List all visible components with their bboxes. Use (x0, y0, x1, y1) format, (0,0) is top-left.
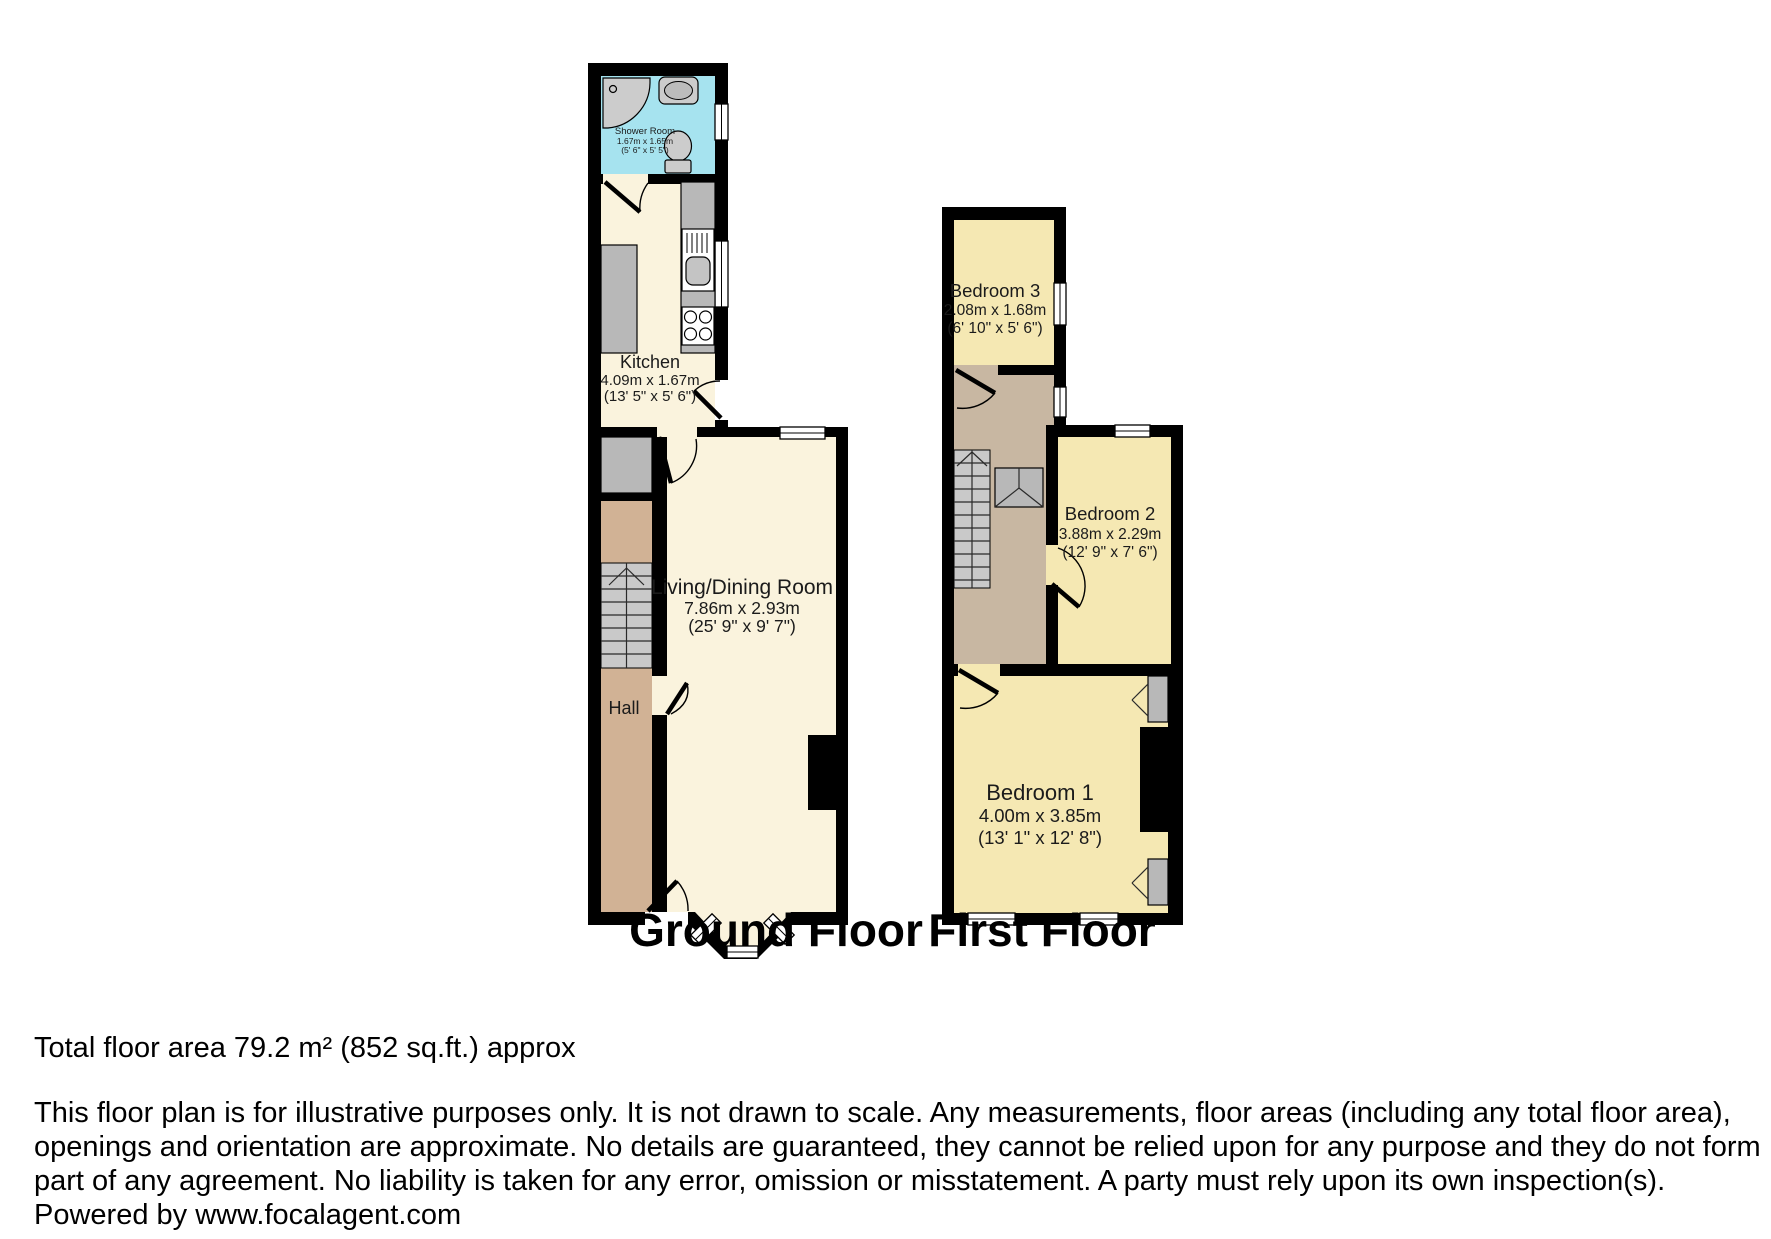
bedroom3-dims-ft: (6' 10" x 5' 6") (947, 320, 1042, 337)
hall-label: Hall (608, 698, 639, 718)
first-floor-stairs (954, 450, 990, 588)
understairs-cupboard (601, 437, 652, 493)
hall-living-door-opening (652, 676, 667, 715)
ground-floor-stairs (601, 563, 652, 668)
bedroom2-door-opening (1046, 545, 1058, 585)
ground-floor-plan: Shower Room 1.67m x 1.65m (5' 6" x 5' 5"… (588, 63, 848, 959)
bedroom1-label: Bedroom 1 (986, 780, 1094, 805)
landing-floor-upper (954, 375, 1054, 425)
floorplan-page: Shower Room 1.67m x 1.65m (5' 6" x 5' 5"… (0, 0, 1771, 1239)
bedroom2-window (1115, 425, 1150, 437)
kitchen-hob (682, 307, 714, 345)
landing-window (1054, 387, 1066, 417)
living-room-dims-ft: (25' 9" x 9' 7") (688, 616, 796, 636)
living-room-label: Living/Dining Room (651, 576, 833, 599)
stair-winder (995, 468, 1043, 507)
bedroom2-label: Bedroom 2 (1065, 503, 1156, 524)
living-room-floor (667, 437, 836, 912)
bedroom3-window (1054, 283, 1066, 325)
bedroom3-dims-m: 2.08m x 1.68m (944, 302, 1047, 319)
kitchen-dims-ft: (13' 5" x 5' 6") (604, 388, 696, 405)
living-room-window (780, 427, 825, 439)
bedroom2-dims-m: 3.88m x 2.29m (1059, 526, 1162, 543)
kitchen-sink (682, 229, 714, 291)
first-floor-title: First Floor (928, 904, 1156, 956)
kitchen-dims-m: 4.09m x 1.67m (600, 372, 699, 389)
bedroom1-chimney-breast (1140, 727, 1183, 832)
living-room-dims-m: 7.86m x 2.93m (684, 598, 800, 618)
disclaimer-line-1: This floor plan is for illustrative purp… (34, 1096, 1761, 1130)
bedroom2-dims-ft: (12' 9" x 7' 6") (1062, 544, 1157, 561)
kitchen-window (715, 241, 728, 307)
ground-floor-title: Ground Floor (629, 904, 923, 956)
disclaimer: This floor plan is for illustrative purp… (34, 1096, 1761, 1232)
floorplan-drawing: Shower Room 1.67m x 1.65m (5' 6" x 5' 5"… (0, 0, 1771, 1000)
first-floor-plan: Bedroom 3 2.08m x 1.68m (6' 10" x 5' 6")… (942, 207, 1183, 925)
bedroom3-label: Bedroom 3 (950, 280, 1041, 301)
shower-door-opening (603, 174, 648, 184)
bathroom-sink (659, 77, 698, 104)
disclaimer-line-3: part of any agreement. No liability is t… (34, 1164, 1761, 1198)
disclaimer-line-2: openings and orientation are approximate… (34, 1130, 1761, 1164)
kitchen-living-door-opening (657, 427, 697, 437)
shower-room-dims-ft: (5' 6" x 5' 5") (621, 145, 669, 155)
powered-by: Powered by www.focalagent.com (34, 1198, 1761, 1232)
bedroom1-dims-m: 4.00m x 3.85m (979, 805, 1101, 826)
shower-window (715, 104, 728, 140)
kitchen-counter-left (601, 245, 637, 353)
bedroom1-dims-ft: (13' 1" x 12' 8") (978, 827, 1102, 848)
total-floor-area: Total floor area 79.2 m² (852 sq.ft.) ap… (34, 1032, 576, 1065)
kitchen-label: Kitchen (620, 352, 680, 372)
living-chimney-breast (808, 735, 848, 810)
